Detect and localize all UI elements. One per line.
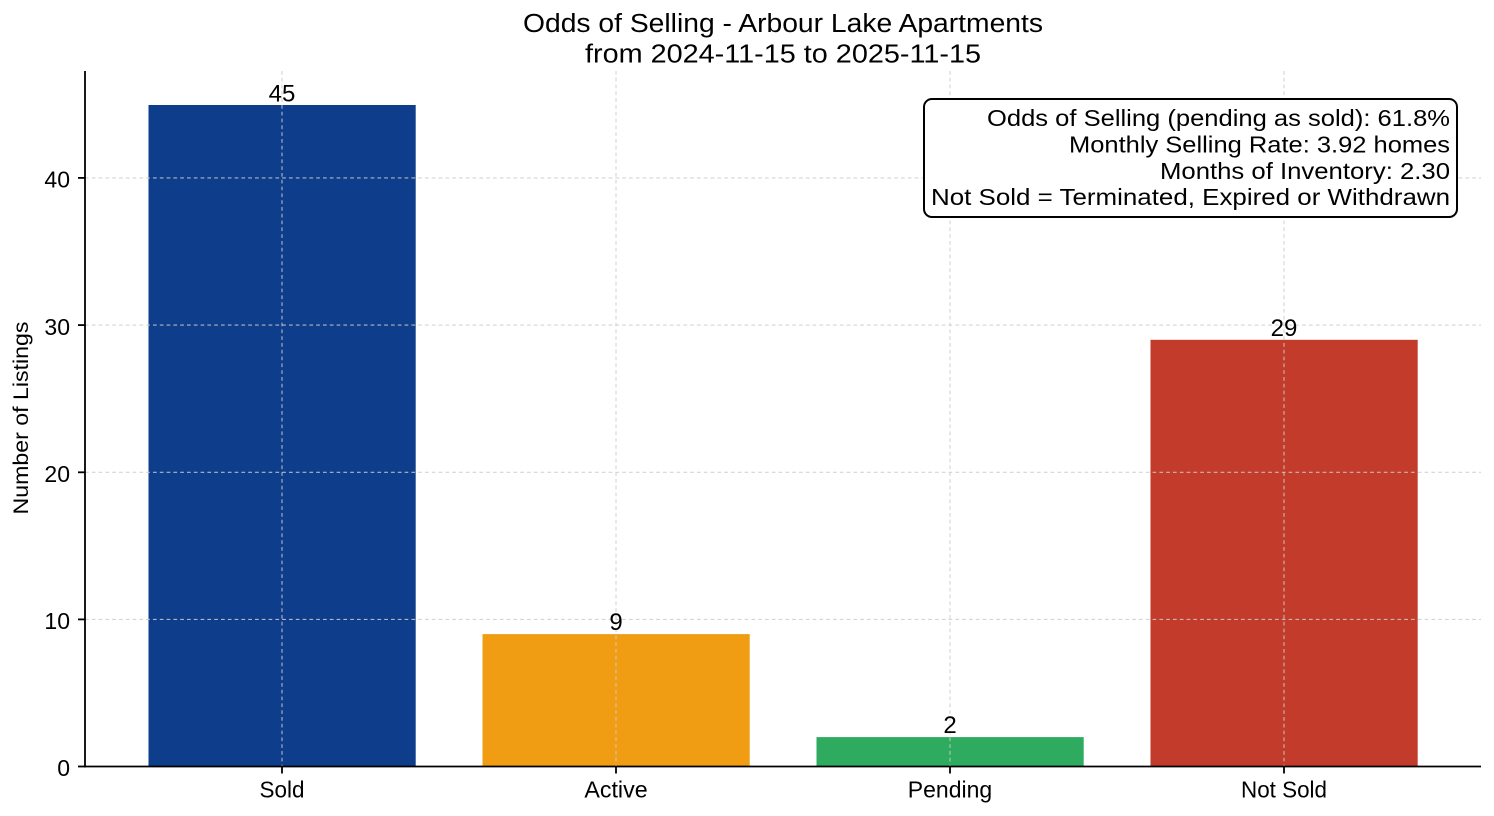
svg-text:Odds of Selling - Arbour Lake: Odds of Selling - Arbour Lake Apartments (523, 10, 1043, 38)
svg-text:10: 10 (44, 608, 70, 634)
svg-text:Odds of Selling (pending as so: Odds of Selling (pending as sold): 61.8% (987, 105, 1450, 131)
svg-text:Not Sold = Terminated, Expired: Not Sold = Terminated, Expired or Withdr… (931, 184, 1450, 210)
svg-text:Number of Listings: Number of Listings (9, 322, 33, 515)
svg-text:45: 45 (269, 81, 296, 108)
svg-text:Monthly Selling Rate: 3.92 hom: Monthly Selling Rate: 3.92 homes (1069, 131, 1450, 157)
svg-text:Months of Inventory: 2.30: Months of Inventory: 2.30 (1160, 158, 1450, 184)
svg-text:40: 40 (44, 167, 70, 193)
svg-text:from 2024-11-15 to 2025-11-15: from 2024-11-15 to 2025-11-15 (585, 40, 981, 68)
svg-text:29: 29 (1271, 315, 1298, 342)
svg-text:Not Sold: Not Sold (1241, 777, 1327, 803)
svg-text:2: 2 (943, 712, 956, 739)
svg-text:30: 30 (44, 314, 70, 340)
svg-text:Active: Active (584, 777, 647, 803)
svg-text:0: 0 (57, 755, 70, 781)
svg-text:Pending: Pending (908, 777, 992, 803)
svg-text:20: 20 (44, 461, 70, 487)
svg-text:Sold: Sold (260, 777, 305, 803)
svg-text:9: 9 (609, 609, 622, 636)
